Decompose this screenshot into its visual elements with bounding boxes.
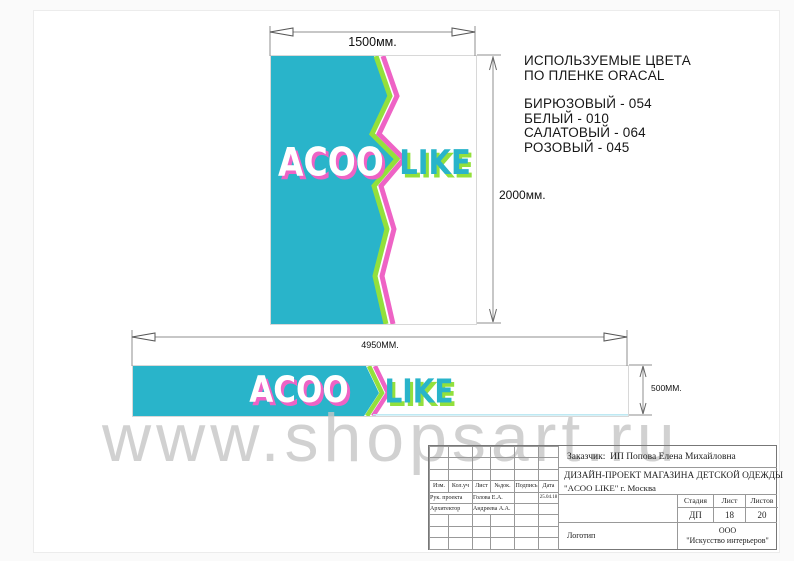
date-cell: 25.04.18 bbox=[539, 492, 559, 503]
name-cell: Голова Е.А. bbox=[473, 492, 515, 503]
role-cell: Рук. проекта bbox=[430, 492, 473, 503]
date-cell bbox=[539, 503, 559, 514]
table-row-headers: Изм. Кол.уч Лист №док. Подпись Дата bbox=[430, 481, 559, 492]
col-header: Подпись bbox=[515, 481, 539, 492]
color-item: РОЗОВЫЙ - 045 bbox=[524, 141, 691, 156]
logo-cell-label: Логотип bbox=[559, 523, 677, 549]
logo-like: LIKE bbox=[396, 142, 474, 182]
bottom-row: Логотип ООО "Искусство интерьеров" bbox=[559, 523, 777, 549]
dimension-label-width-vertical: 1500мм. bbox=[270, 35, 475, 49]
stage-sheet-table: Стадия Лист Листов ДП 18 20 bbox=[677, 495, 777, 523]
colors-note: ИСПОЛЬЗУЕМЫЕ ЦВЕТА ПО ПЛЕНКЕ ORACAL БИРЮ… bbox=[524, 54, 691, 155]
project-title-row: ДИЗАЙН-ПРОЕКТ МАГАЗИНА ДЕТСКОЙ ОДЕЖДЫ "A… bbox=[559, 468, 777, 495]
color-item: БЕЛЫЙ - 010 bbox=[524, 112, 691, 127]
dimension-label-height-horizontal: 500ММ. bbox=[651, 383, 682, 393]
col-header: Изм. bbox=[430, 481, 449, 492]
col-header: Лист bbox=[473, 481, 491, 492]
signature-cell bbox=[515, 503, 539, 514]
table-row bbox=[430, 447, 559, 458]
sheet-value: 18 bbox=[713, 508, 745, 523]
company-line2: "Искусство интерьеров" bbox=[678, 536, 777, 546]
name-cell: Андреева А.А. bbox=[473, 503, 515, 514]
col-header: Дата bbox=[539, 481, 559, 492]
table-row bbox=[430, 458, 559, 469]
col-header: Кол.уч bbox=[449, 481, 473, 492]
dimension-label-height-vertical: 2000мм. bbox=[499, 188, 546, 202]
project-title-line1: ДИЗАЙН-ПРОЕКТ МАГАЗИНА ДЕТСКОЙ ОДЕЖДЫ bbox=[564, 471, 777, 481]
title-block-revision-grid: Изм. Кол.уч Лист №док. Подпись Дата Рук.… bbox=[429, 446, 559, 550]
company-cell: ООО "Искусство интерьеров" bbox=[677, 523, 777, 549]
table-row-project-lead: Рук. проекта Голова Е.А. 25.04.18 bbox=[430, 492, 559, 503]
sheet-label: Лист bbox=[713, 495, 745, 507]
color-item: БИРЮЗОВЫЙ - 054 bbox=[524, 97, 691, 112]
table-row-architect: Архитектор Андреева А.А. bbox=[430, 503, 559, 514]
signature-cell bbox=[515, 492, 539, 503]
vertical-banner bbox=[270, 55, 477, 325]
stage-label: Стадия bbox=[678, 495, 713, 507]
title-block: Изм. Кол.уч Лист №док. Подпись Дата Рук.… bbox=[428, 445, 777, 550]
col-header: №док. bbox=[491, 481, 515, 492]
sheets-value: 20 bbox=[745, 508, 778, 523]
customer-name: ИП Попова Елена Михайловна bbox=[610, 452, 736, 462]
stage-sheet-row: Стадия Лист Листов ДП 18 20 bbox=[559, 495, 777, 523]
color-item: САЛАТОВЫЙ - 064 bbox=[524, 126, 691, 141]
stage-value: ДП bbox=[678, 508, 713, 523]
customer-row: Заказчик: ИП Попова Елена Михайловна bbox=[559, 446, 777, 468]
stage-sheet-values: ДП 18 20 bbox=[678, 508, 778, 523]
vertical-banner-graphic bbox=[271, 56, 476, 324]
colors-note-title-line2: ПО ПЛЕНКЕ ORACAL bbox=[524, 69, 691, 84]
customer-label: Заказчик: bbox=[567, 452, 605, 462]
colors-note-list: БИРЮЗОВЫЙ - 054 БЕЛЫЙ - 010 САЛАТОВЫЙ - … bbox=[524, 97, 691, 155]
sheets-label: Листов bbox=[745, 495, 778, 507]
logo-acoo: ACOO bbox=[278, 139, 378, 185]
company-line1: ООО bbox=[678, 526, 777, 536]
design-drawing-page: ACOO LIKE ACOO LIKE 1500мм. 2000мм. 4950… bbox=[0, 0, 794, 561]
dimension-label-width-horizontal: 4950ММ. bbox=[280, 340, 480, 350]
role-cell: Архитектор bbox=[430, 503, 473, 514]
table-row bbox=[430, 538, 559, 549]
table-row bbox=[430, 526, 559, 537]
colors-note-title-line1: ИСПОЛЬЗУЕМЫЕ ЦВЕТА bbox=[524, 54, 691, 69]
project-title-line2: "ACOO LIKE" г. Москва bbox=[564, 483, 777, 493]
table-row bbox=[430, 515, 559, 526]
stage-sheet-headers: Стадия Лист Листов bbox=[678, 495, 778, 508]
title-block-main: Заказчик: ИП Попова Елена Михайловна ДИЗ… bbox=[558, 446, 777, 549]
table-row bbox=[430, 469, 559, 480]
